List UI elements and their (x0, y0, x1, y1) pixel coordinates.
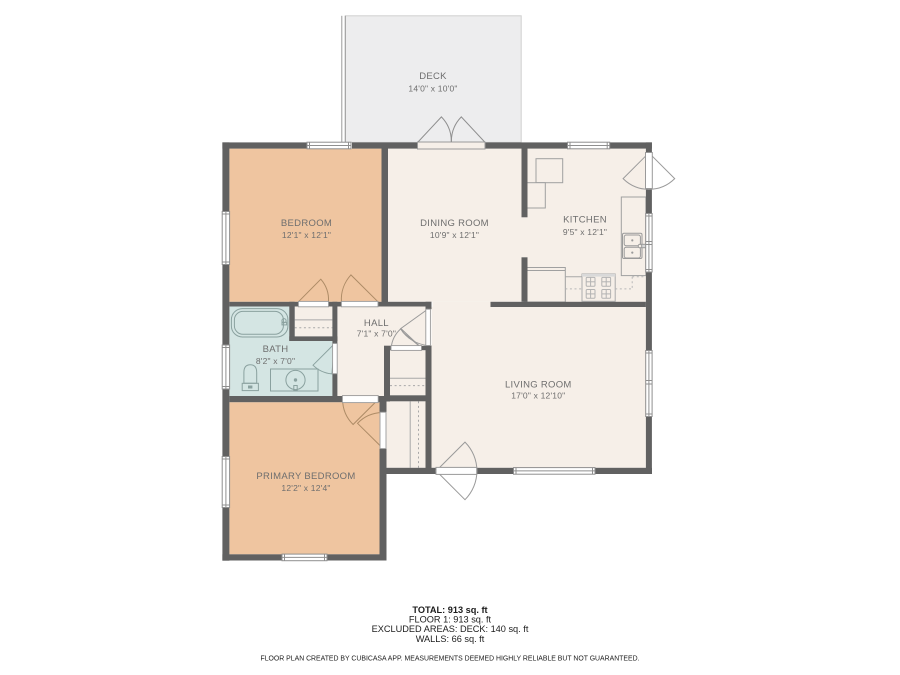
svg-text:7'1" x 7'0": 7'1" x 7'0" (357, 329, 396, 339)
svg-text:12'1" x 12'1": 12'1" x 12'1" (282, 230, 331, 240)
svg-text:LIVING ROOM: LIVING ROOM (505, 380, 572, 391)
svg-text:8'2" x 7'0": 8'2" x 7'0" (256, 356, 295, 366)
svg-text:EXCLUDED AREAS: DECK: 140 sq.: EXCLUDED AREAS: DECK: 140 sq. ft (372, 624, 529, 634)
svg-text:TOTAL: 913 sq. ft: TOTAL: 913 sq. ft (412, 605, 487, 615)
svg-text:9'5" x 12'1": 9'5" x 12'1" (563, 227, 607, 237)
svg-text:BEDROOM: BEDROOM (281, 218, 332, 229)
svg-text:DINING ROOM: DINING ROOM (420, 218, 489, 229)
svg-text:WALLS: 66 sq. ft: WALLS: 66 sq. ft (416, 634, 485, 644)
svg-text:DECK: DECK (419, 71, 447, 82)
svg-text:14'0" x 10'0": 14'0" x 10'0" (408, 84, 457, 94)
svg-text:KITCHEN: KITCHEN (563, 215, 607, 226)
svg-text:12'2" x 12'4": 12'2" x 12'4" (281, 483, 330, 493)
svg-text:FLOOR PLAN CREATED BY CUBICASA: FLOOR PLAN CREATED BY CUBICASA APP. MEAS… (261, 655, 640, 662)
svg-text:PRIMARY BEDROOM: PRIMARY BEDROOM (256, 471, 355, 482)
svg-text:10'9" x 12'1": 10'9" x 12'1" (430, 230, 479, 240)
svg-text:BATH: BATH (263, 344, 289, 355)
svg-text:17'0" x 12'10": 17'0" x 12'10" (511, 391, 565, 401)
svg-text:HALL: HALL (364, 318, 389, 329)
svg-text:FLOOR 1: 913 sq. ft: FLOOR 1: 913 sq. ft (409, 614, 492, 624)
